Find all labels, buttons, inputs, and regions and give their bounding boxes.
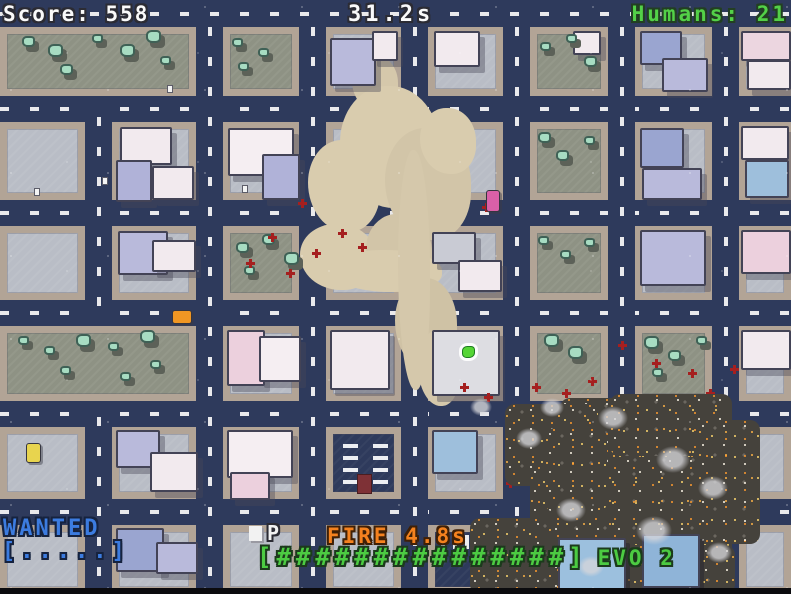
score-display: Score: 558 xyxy=(3,2,149,26)
tree xyxy=(120,372,131,381)
tree xyxy=(566,34,577,43)
tree xyxy=(60,366,71,375)
building xyxy=(640,230,706,286)
blood-splatter xyxy=(562,392,571,395)
tree xyxy=(584,238,595,247)
building xyxy=(662,58,708,92)
tree xyxy=(544,334,559,347)
building xyxy=(227,430,293,478)
tree xyxy=(108,342,119,351)
smoke-puff xyxy=(556,498,586,522)
blood-splatter xyxy=(286,272,295,275)
game-viewport[interactable]: Score: 558 31.2s Humans: 21 WANTED [....… xyxy=(0,0,791,594)
blood-splatter xyxy=(532,386,541,389)
building xyxy=(741,230,791,274)
road-vertical xyxy=(299,27,326,594)
parking-dash xyxy=(373,456,388,460)
road-vertical xyxy=(196,27,223,594)
parking-dash xyxy=(343,480,358,484)
parking-door xyxy=(357,474,372,494)
timer-display: 31.2s xyxy=(348,2,434,27)
tree xyxy=(258,48,269,57)
road-vertical xyxy=(503,27,530,594)
tree xyxy=(48,44,63,57)
tree xyxy=(146,30,161,43)
evo-meter-row: [###############] EVO 2 xyxy=(257,543,676,571)
building xyxy=(741,330,791,370)
human xyxy=(168,86,172,92)
blood-splatter xyxy=(268,236,277,239)
human xyxy=(103,178,107,184)
city-block-pstruct xyxy=(326,427,401,499)
explosion-crater-blob xyxy=(420,108,476,174)
building xyxy=(152,166,194,200)
blood-splatter xyxy=(652,362,661,365)
tree xyxy=(284,252,299,265)
smoke-puff xyxy=(656,446,690,473)
building xyxy=(747,60,791,90)
tree xyxy=(22,36,35,47)
tree xyxy=(76,334,91,347)
tree xyxy=(540,42,551,51)
city-block-plain xyxy=(0,226,85,300)
human xyxy=(35,189,39,195)
city-map xyxy=(0,0,791,594)
parking-dash xyxy=(343,444,358,448)
tree xyxy=(150,360,161,369)
smoke-puff xyxy=(470,398,492,416)
tree xyxy=(538,236,549,245)
humans-counter: Humans: 21 xyxy=(632,2,788,26)
parking-dash xyxy=(343,456,358,460)
tree xyxy=(556,150,569,161)
blood-splatter xyxy=(688,372,697,375)
building xyxy=(230,472,270,500)
smoke-puff xyxy=(540,398,564,417)
car xyxy=(486,190,500,212)
blood-splatter xyxy=(618,344,627,347)
car xyxy=(26,443,41,463)
parking-dash xyxy=(343,468,358,472)
tree xyxy=(696,336,707,345)
blood-splatter xyxy=(338,232,347,235)
tree xyxy=(652,368,663,377)
tree xyxy=(668,350,681,361)
tree xyxy=(18,336,29,345)
wanted-meter: [.....] xyxy=(2,539,130,564)
blood-splatter xyxy=(312,252,321,255)
building xyxy=(432,430,478,474)
building xyxy=(116,160,152,202)
tree xyxy=(140,330,155,343)
building xyxy=(262,154,300,200)
smoke-puff xyxy=(698,476,728,500)
building xyxy=(741,126,789,160)
parking-dash xyxy=(373,444,388,448)
building xyxy=(640,128,684,168)
smoke-puff xyxy=(706,542,732,563)
building xyxy=(741,31,791,61)
tree xyxy=(538,132,551,143)
wanted-label: WANTED xyxy=(3,516,100,541)
parking-square-icon xyxy=(249,526,262,541)
building xyxy=(259,336,301,382)
building xyxy=(372,31,398,61)
city-block-plain xyxy=(0,427,85,499)
tree xyxy=(92,34,103,43)
screen-letterbox xyxy=(0,588,791,594)
blood-splatter xyxy=(298,202,307,205)
building xyxy=(642,168,702,200)
tree xyxy=(238,62,249,71)
tree xyxy=(568,346,583,359)
tree xyxy=(60,64,73,75)
building xyxy=(458,260,502,292)
smoke-puff xyxy=(598,406,628,430)
tree xyxy=(232,38,243,47)
human xyxy=(243,186,247,192)
building xyxy=(745,160,789,198)
building xyxy=(150,452,198,492)
tree xyxy=(560,250,571,259)
tree xyxy=(236,242,249,253)
tree xyxy=(644,336,659,349)
smoke-puff xyxy=(636,516,672,545)
building xyxy=(434,31,480,67)
parking-indicator: P xyxy=(249,521,279,545)
tree xyxy=(584,56,597,67)
parking-dash xyxy=(373,480,388,484)
smoke-puff xyxy=(516,428,542,449)
parking-letter: P xyxy=(267,521,279,545)
blood-splatter xyxy=(588,380,597,383)
blood-splatter xyxy=(358,246,367,249)
city-block-plain xyxy=(0,122,85,200)
road-vertical xyxy=(85,27,112,594)
tree xyxy=(584,136,595,145)
tree xyxy=(44,346,55,355)
building xyxy=(330,330,390,390)
tree xyxy=(160,56,171,65)
building xyxy=(156,542,198,574)
player-monster xyxy=(462,346,475,358)
blood-splatter xyxy=(246,262,255,265)
building xyxy=(152,240,196,272)
evo-progress-bar: [###############] xyxy=(257,543,588,571)
building xyxy=(330,38,376,86)
blood-splatter xyxy=(460,386,469,389)
tree xyxy=(120,44,135,57)
parking-dash xyxy=(373,468,388,472)
city-block-park xyxy=(530,326,608,401)
blood-splatter xyxy=(730,368,739,371)
evo-label: EVO 2 xyxy=(598,546,676,570)
car xyxy=(172,310,192,324)
city-block-park xyxy=(0,326,196,401)
